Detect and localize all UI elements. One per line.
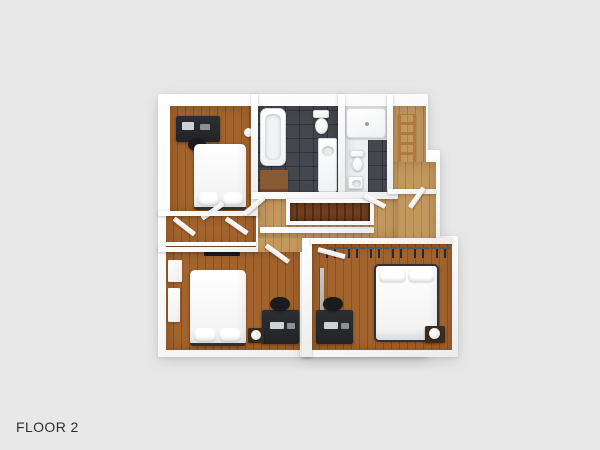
pillow	[379, 269, 406, 282]
desk-item	[270, 322, 284, 329]
pillow	[194, 328, 216, 341]
bathtub-basin	[265, 114, 281, 160]
sink	[348, 176, 363, 189]
closet-corridor	[166, 214, 256, 248]
sink-basin	[352, 180, 361, 187]
sink-vanity	[318, 138, 337, 192]
shower-drain	[365, 122, 369, 126]
hallway-entry	[258, 238, 302, 252]
bathtub	[260, 108, 286, 166]
shower-tray	[346, 108, 386, 138]
desk-item	[341, 323, 349, 329]
interior-wall	[158, 247, 258, 252]
interior-wall	[338, 94, 345, 198]
pillow	[198, 192, 219, 205]
interior-wall	[387, 94, 393, 195]
desk-item	[182, 122, 194, 130]
desk-item	[324, 322, 338, 329]
lamp	[429, 328, 440, 339]
desk	[316, 310, 353, 344]
bed-headboard	[190, 343, 246, 346]
pillow	[219, 328, 241, 341]
room-bathroom-second	[344, 106, 388, 195]
desk-item	[200, 124, 210, 130]
closet-door-panel	[225, 216, 249, 235]
interior-wall	[388, 189, 436, 194]
bed	[190, 270, 246, 346]
wood-cabinet	[260, 170, 288, 192]
room-bedroom-bottom-left	[166, 252, 300, 350]
pillow	[408, 269, 434, 282]
office-chair	[323, 297, 343, 311]
tile-strip	[368, 140, 387, 194]
toilet-tank	[313, 110, 329, 118]
toilet	[315, 118, 328, 134]
desk-item	[287, 323, 295, 329]
room-bedroom-bottom-right	[312, 244, 452, 350]
desk	[262, 310, 299, 344]
closet-door-panel	[172, 217, 196, 237]
pillow	[222, 192, 243, 205]
room-bathroom-main	[257, 106, 339, 195]
room-bedroom-top-left	[170, 106, 254, 214]
wardrobe	[168, 260, 182, 282]
stair-railing-wall	[260, 227, 374, 233]
wardrobe	[168, 288, 180, 322]
interior-wall	[311, 238, 452, 244]
interior-wall	[251, 192, 398, 199]
toilet-tank	[350, 150, 364, 157]
floor-label: FLOOR 2	[16, 419, 79, 435]
stairwell	[286, 199, 374, 225]
bed	[194, 144, 246, 210]
sink-basin	[322, 146, 334, 156]
office-chair	[270, 297, 290, 311]
floor-plan-scene: FLOOR 2	[0, 0, 600, 450]
closet-shelf-rail	[166, 242, 256, 246]
tv-panel	[204, 252, 240, 256]
lamp	[251, 330, 261, 340]
toilet	[352, 157, 363, 171]
interior-wall	[302, 238, 312, 357]
